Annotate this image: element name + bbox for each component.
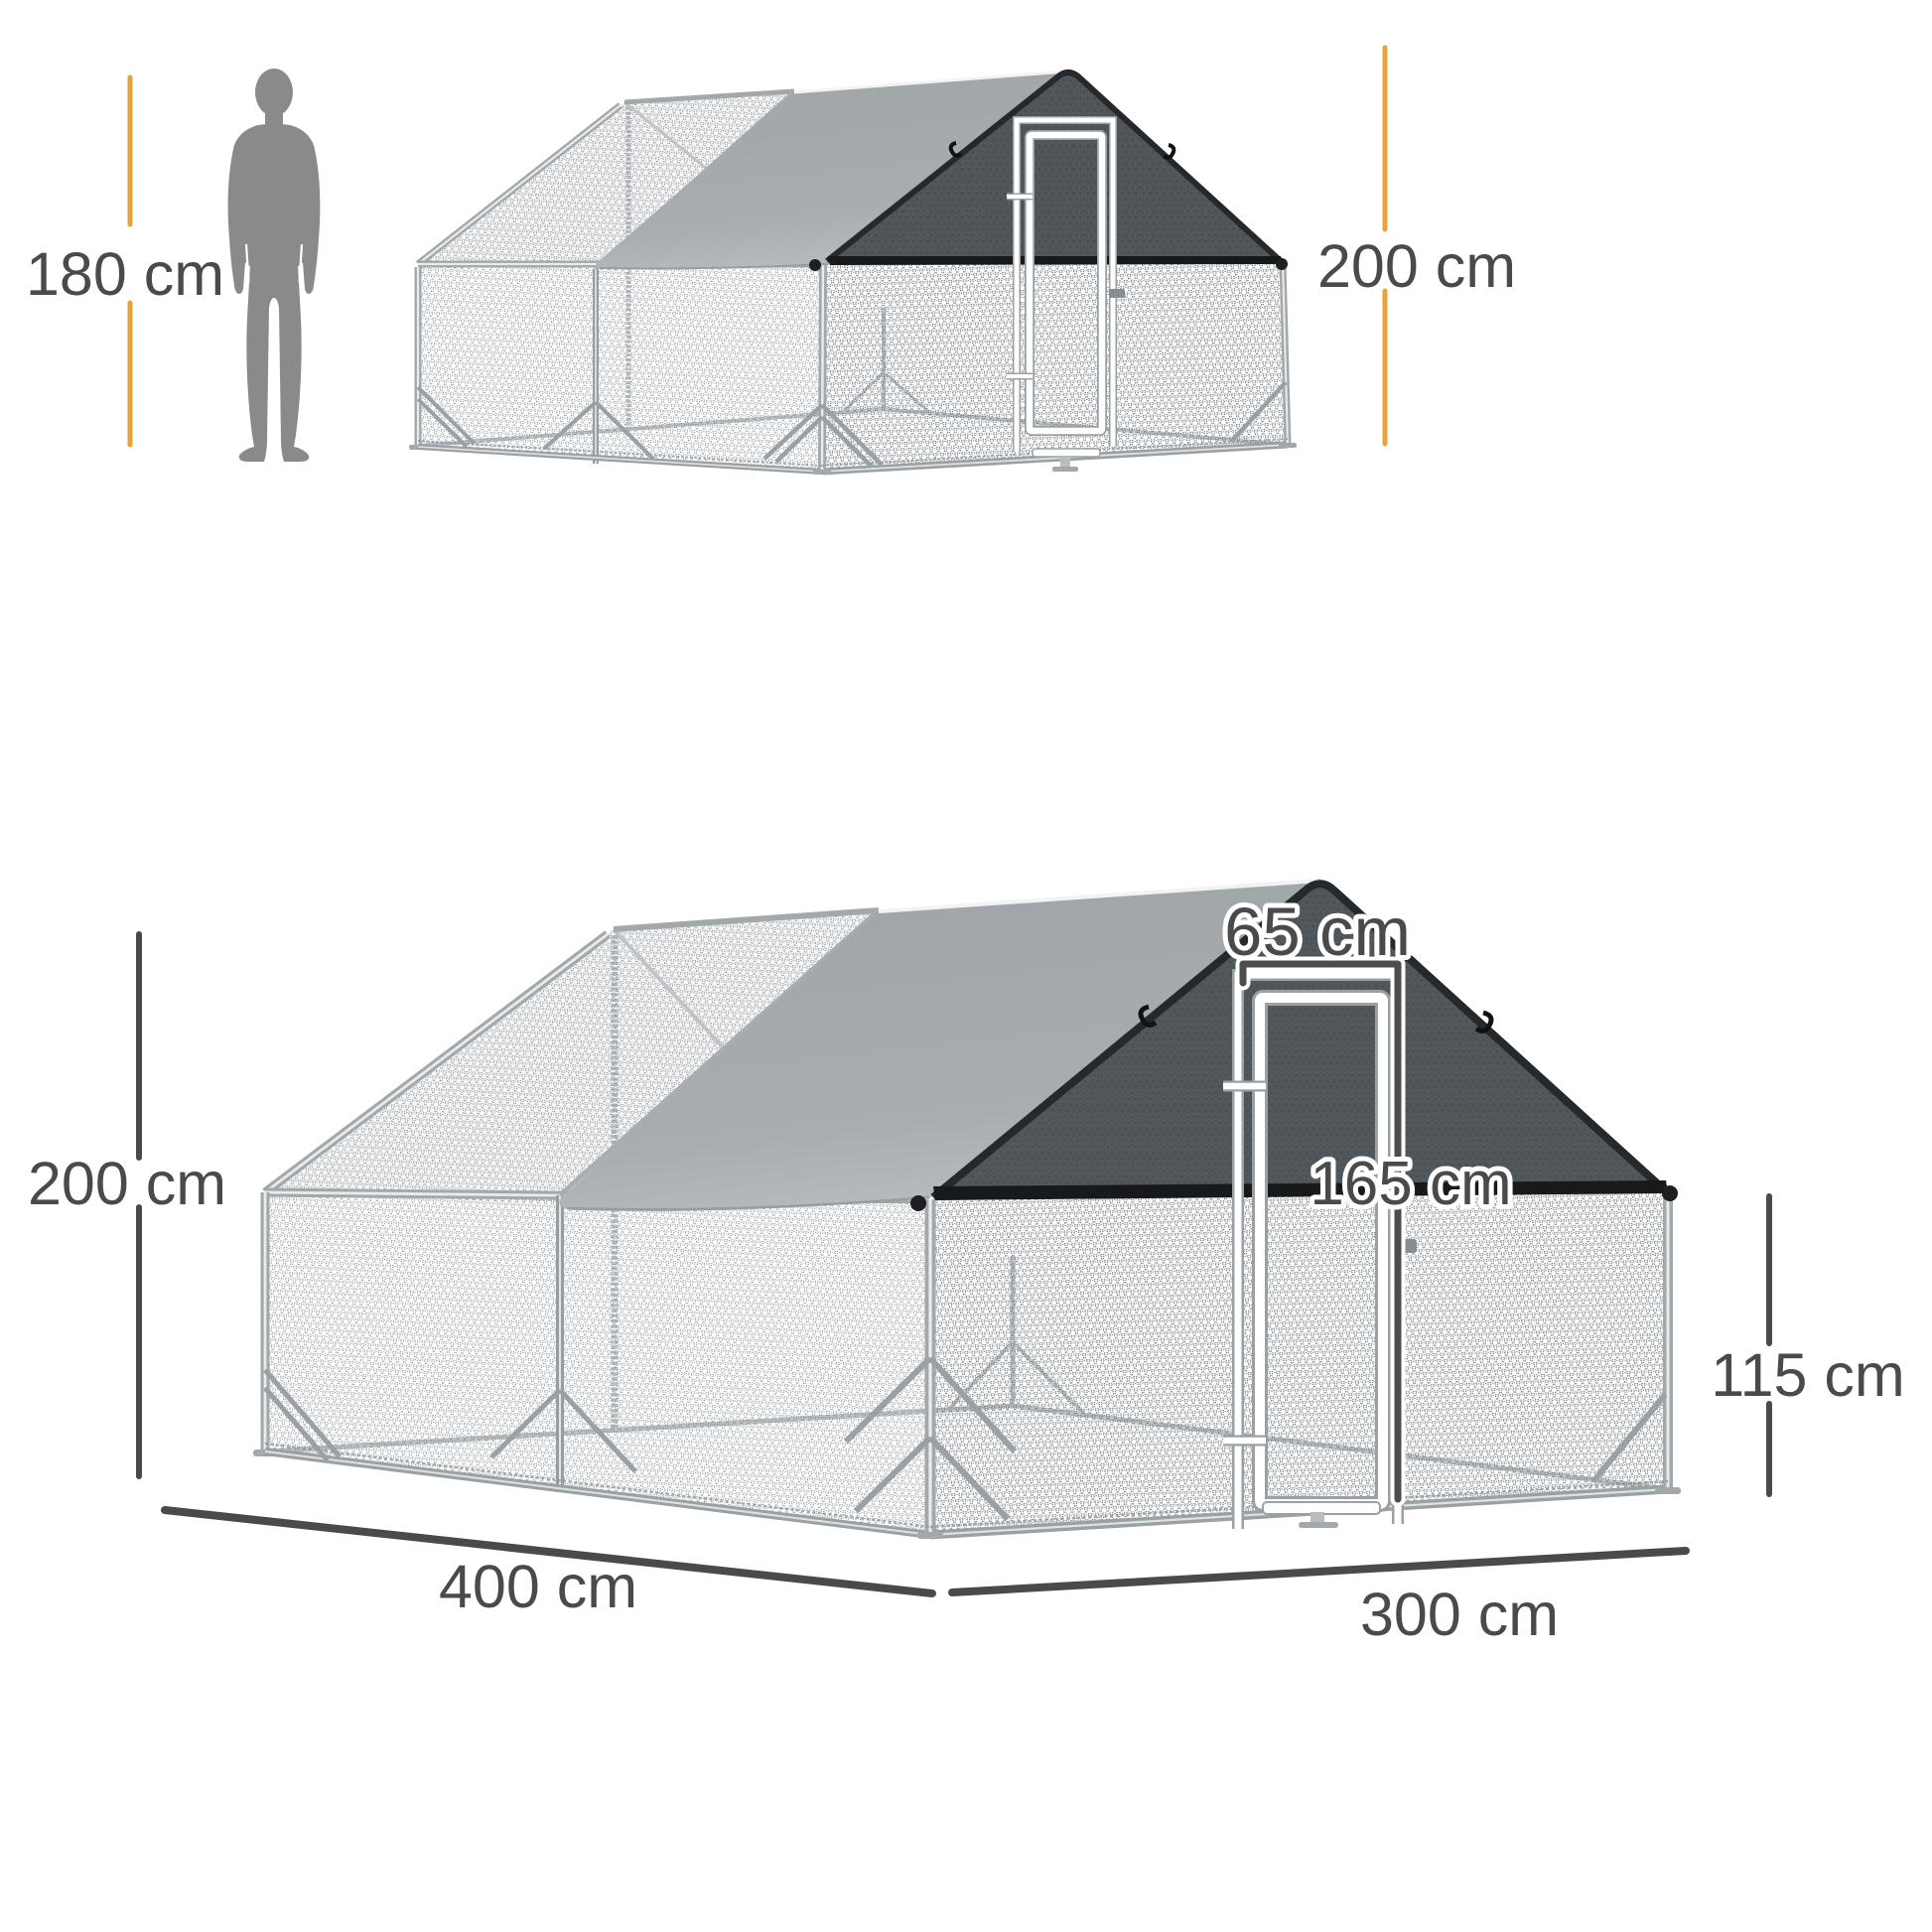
svg-text:165 cm: 165 cm: [1310, 1150, 1511, 1218]
svg-text:200 cm: 200 cm: [1317, 232, 1516, 300]
svg-text:115 cm: 115 cm: [1711, 1341, 1905, 1409]
svg-text:400 cm: 400 cm: [439, 1553, 637, 1620]
svg-text:65 cm: 65 cm: [1224, 894, 1411, 970]
svg-text:200 cm: 200 cm: [28, 1150, 226, 1217]
svg-text:180 cm: 180 cm: [26, 240, 224, 308]
svg-text:300 cm: 300 cm: [1360, 1581, 1559, 1648]
